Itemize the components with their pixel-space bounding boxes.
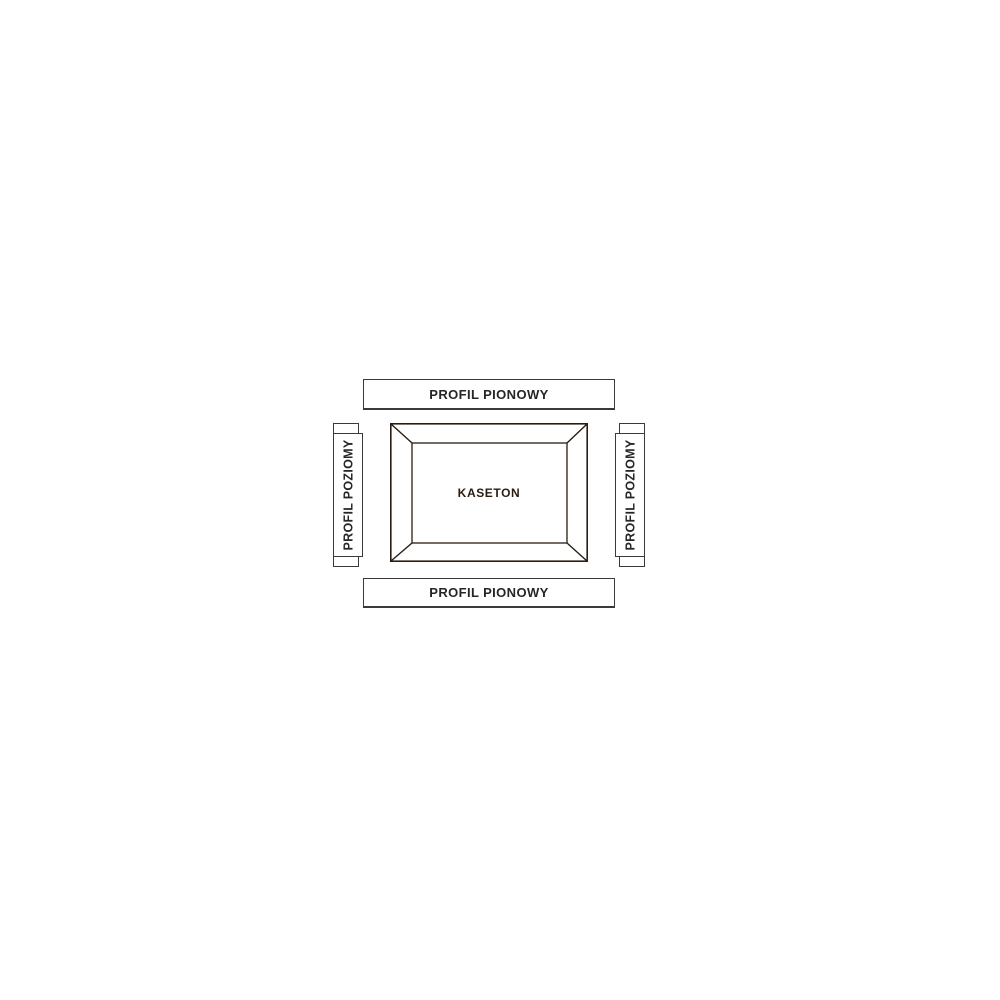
- mitre-line-top-left: [391, 424, 412, 443]
- bottom-profile-label: PROFIL PIONOWY: [429, 585, 548, 600]
- diagram-canvas: PROFIL PIONOWY PROFIL PIONOWY PROFIL POZ…: [0, 0, 1000, 1000]
- kaseton-outer-frame: [391, 424, 587, 561]
- mitre-line-bottom-left: [391, 543, 412, 561]
- kaseton-panel-graphic: [390, 423, 588, 562]
- kaseton-inner-frame: [412, 443, 567, 543]
- mitre-line-top-right: [567, 424, 587, 443]
- left-profile-label: PROFIL POZIOMY: [341, 440, 355, 551]
- top-profile-label: PROFIL PIONOWY: [429, 387, 548, 402]
- kaseton-panel: KASETON: [390, 423, 588, 562]
- bottom-profile-box: PROFIL PIONOWY: [363, 578, 615, 608]
- right-profile-label: PROFIL POZIOMY: [623, 440, 637, 551]
- right-profile-box: PROFIL POZIOMY: [615, 433, 645, 557]
- left-profile-box: PROFIL POZIOMY: [333, 433, 363, 557]
- top-profile-box: PROFIL PIONOWY: [363, 379, 615, 410]
- mitre-line-bottom-right: [567, 543, 587, 561]
